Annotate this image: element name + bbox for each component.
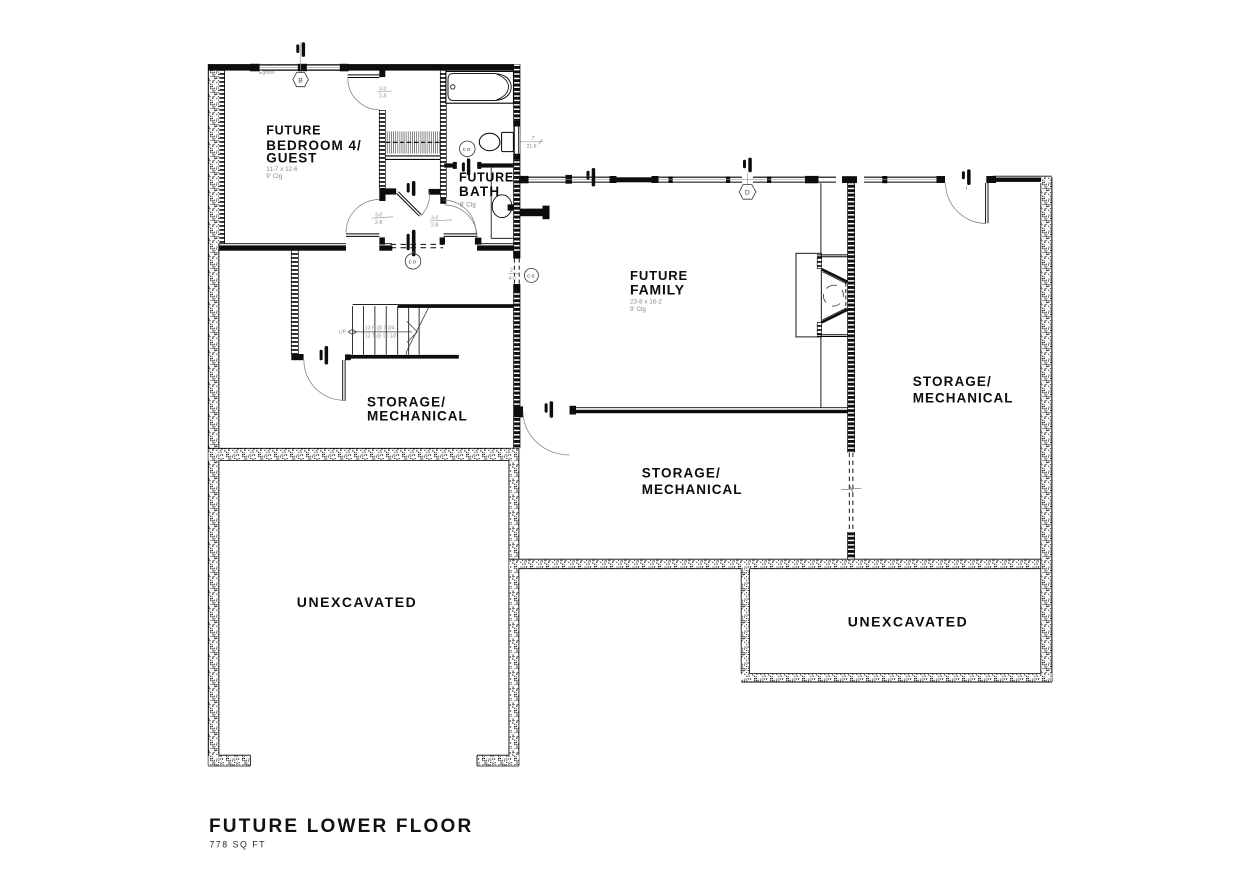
svg-text:2-8: 2-8: [431, 223, 438, 229]
svg-text:2-8: 2-8: [375, 220, 382, 226]
svg-text:B: B: [298, 77, 303, 84]
svg-text:MECHANICAL: MECHANICAL: [913, 391, 1014, 406]
svg-text:c o: c o: [463, 147, 470, 153]
svg-text:9' Clg: 9' Clg: [630, 306, 646, 313]
svg-text:UP: UP: [339, 330, 347, 336]
svg-text:c o: c o: [527, 273, 534, 279]
svg-text:UNEXCAVATED: UNEXCAVATED: [848, 614, 969, 630]
svg-text:7': 7': [532, 136, 536, 142]
svg-text:BATH: BATH: [459, 184, 500, 199]
svg-text:9' Clg: 9' Clg: [460, 202, 476, 209]
svg-text:STORAGE/: STORAGE/: [367, 394, 446, 409]
svg-text:STORAGE/: STORAGE/: [913, 374, 992, 389]
svg-text:c o: c o: [409, 259, 416, 265]
svg-text:Egress: Egress: [259, 70, 275, 76]
svg-text:13 R @ 7 3/4: 13 R @ 7 3/4: [365, 326, 395, 332]
svg-text:FUTURE LOWER FLOOR: FUTURE LOWER FLOOR: [209, 816, 473, 837]
svg-text:21-6: 21-6: [527, 144, 537, 150]
svg-text:STORAGE/: STORAGE/: [642, 465, 721, 480]
svg-text:MECHANICAL: MECHANICAL: [367, 408, 468, 423]
svg-text:9' Clg: 9' Clg: [266, 173, 282, 180]
svg-text:23-8 x 16-2: 23-8 x 16-2: [630, 299, 662, 306]
svg-text:FUTURE: FUTURE: [266, 124, 321, 138]
svg-text:D: D: [745, 190, 750, 197]
svg-text:UNEXCAVATED: UNEXCAVATED: [297, 594, 418, 610]
svg-text:MECHANICAL: MECHANICAL: [642, 482, 743, 497]
svg-text:GUEST: GUEST: [266, 150, 317, 165]
svg-text:12 T @ 10 1/2: 12 T @ 10 1/2: [365, 334, 397, 340]
svg-text:4-0: 4-0: [509, 276, 516, 282]
svg-text:FAMILY: FAMILY: [630, 282, 685, 298]
svg-text:2-8: 2-8: [379, 94, 386, 100]
svg-text:778 SQ FT: 778 SQ FT: [210, 840, 267, 850]
